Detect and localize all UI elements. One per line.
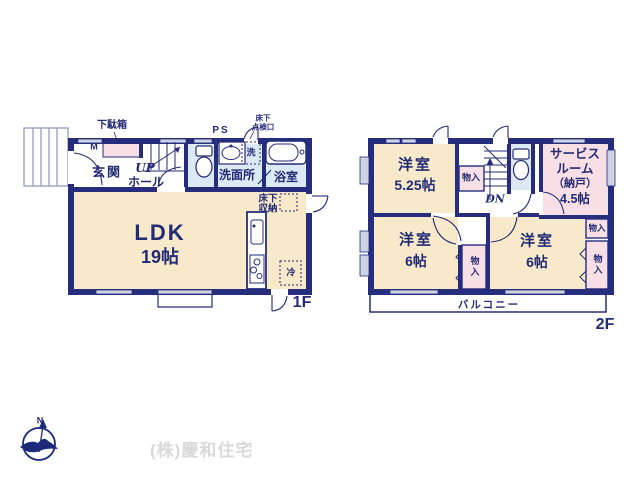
ldk-size-label: 19帖	[141, 248, 179, 266]
bedroom3-room	[490, 217, 588, 289]
service-room-label-3: （納戸）	[553, 179, 597, 190]
fridge-label: 冷	[286, 269, 295, 278]
closet1-label: 物入	[462, 174, 480, 183]
washroom-label: 洗面所	[219, 169, 255, 181]
hall-label: ホール	[128, 176, 164, 188]
washer-label: 洗	[246, 149, 255, 158]
balcony-label: バルコニー	[458, 300, 520, 311]
company-name: (株)慶和住宅	[150, 436, 253, 461]
toilet1-fixture	[196, 146, 212, 177]
shoe-cabinet-box	[103, 142, 140, 157]
bedroom2-size-label: 6帖	[405, 254, 427, 268]
meter-label: M	[90, 143, 98, 152]
service-room-label-1: サービス	[550, 148, 600, 161]
floor1-plan	[24, 127, 328, 311]
bathroom-label: 浴室	[274, 171, 298, 183]
closet2-label: 物入	[470, 256, 479, 278]
hatch-leader	[250, 131, 254, 139]
kitchen-counter	[247, 212, 266, 289]
stairs-down-label: DN	[485, 194, 505, 205]
pipe-space-label: PS	[212, 126, 229, 136]
floorplan-page: 下駄箱 M 玄関 UP ホール PS 床下 点検口 洗 洗面所 浴室 LDK 1…	[0, 0, 640, 480]
bedroom3-size-label: 6帖	[526, 255, 548, 269]
entrance-steps	[24, 128, 68, 186]
bathtub-fixture	[266, 141, 306, 164]
floor1-label: 1F	[293, 295, 312, 311]
bedroom1-label: 洋室	[398, 158, 432, 173]
stairs-up-label: UP	[135, 162, 155, 174]
bedroom3-label: 洋室	[520, 234, 554, 249]
ldk-label: LDK	[134, 222, 185, 244]
shoe-cabinet-label: 下駄箱	[97, 121, 127, 131]
bedroom1-size-label: 5.25帖	[394, 178, 435, 192]
entrance-label: 玄関	[92, 166, 122, 179]
underfloor-hatch-label-1: 床下	[256, 114, 271, 122]
floor2-label: 2F	[596, 317, 615, 333]
washbasin-fixture	[219, 142, 245, 164]
service-room-label-4: 4.5帖	[560, 193, 590, 206]
compass-north-label: N	[37, 417, 44, 426]
toilet2-fixture	[513, 149, 529, 180]
terrace	[158, 295, 212, 307]
bedroom2-label: 洋室	[399, 233, 433, 248]
underfloor-storage-label-2: 収納	[258, 204, 277, 214]
service-room-label-2: ルーム	[556, 163, 593, 176]
closet4-label: 物入	[593, 254, 602, 276]
closet3-label: 物入	[588, 224, 605, 233]
underfloor-hatch-label-2: 点検口	[252, 123, 275, 131]
